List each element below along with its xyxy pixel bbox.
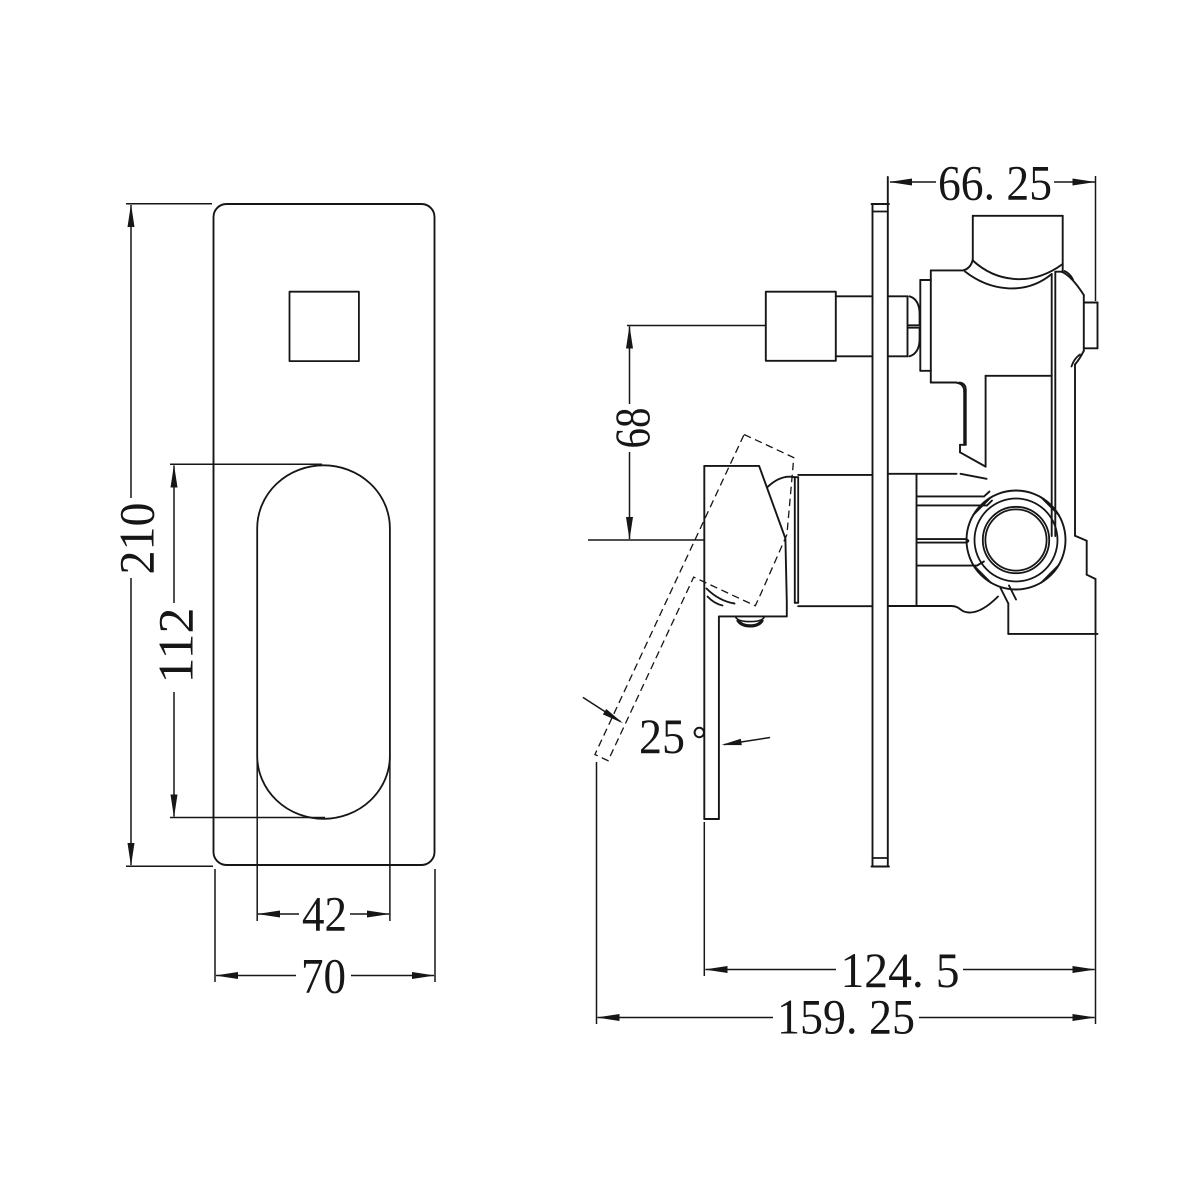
svg-text:68: 68 — [604, 408, 660, 449]
svg-text:42: 42 — [302, 886, 347, 942]
svg-text:159. 25: 159. 25 — [777, 989, 915, 1045]
svg-text:112: 112 — [148, 608, 204, 684]
svg-text:70: 70 — [301, 948, 346, 1004]
svg-text:210: 210 — [109, 503, 165, 575]
svg-text:25: 25 — [639, 708, 685, 764]
svg-text:66. 25: 66. 25 — [938, 155, 1052, 211]
